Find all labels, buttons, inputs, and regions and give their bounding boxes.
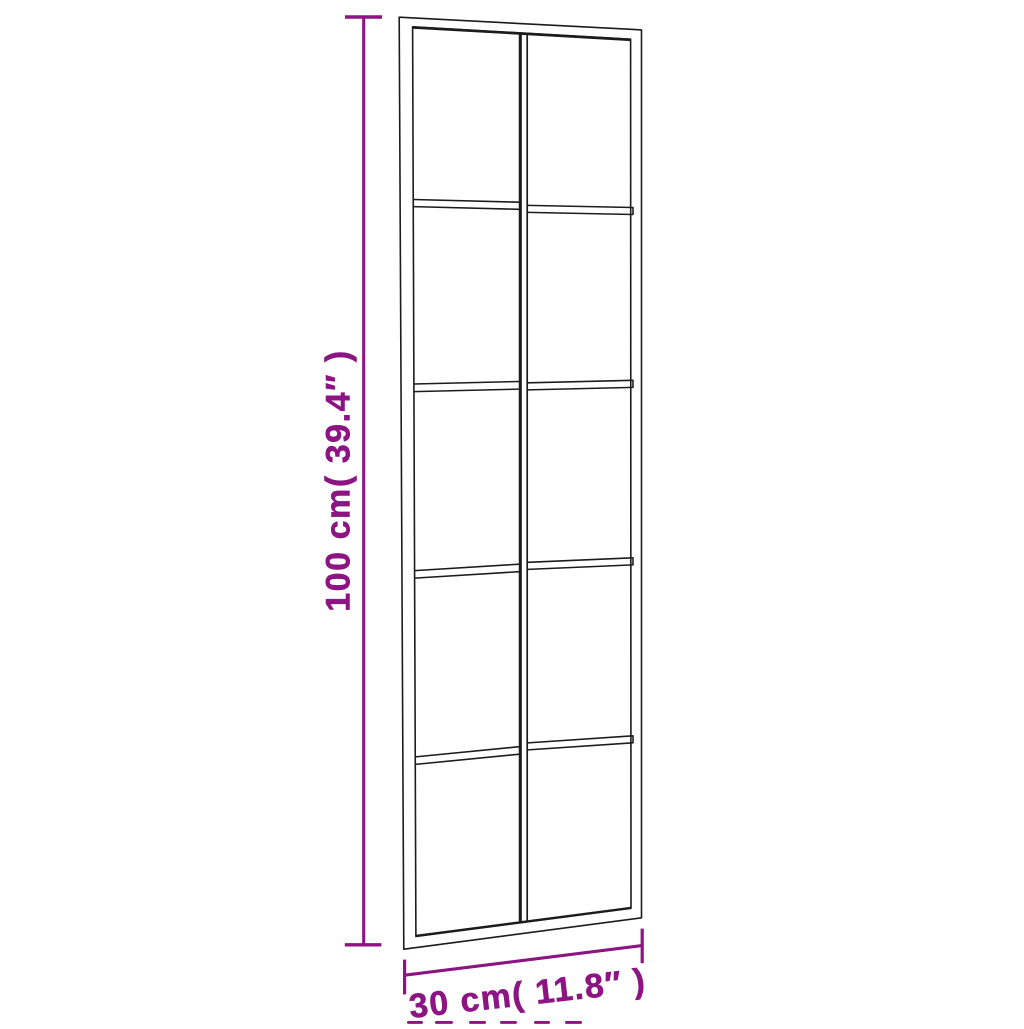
svg-text:100 cm( 39.4″ ): 100 cm( 39.4″ ) <box>320 349 358 612</box>
